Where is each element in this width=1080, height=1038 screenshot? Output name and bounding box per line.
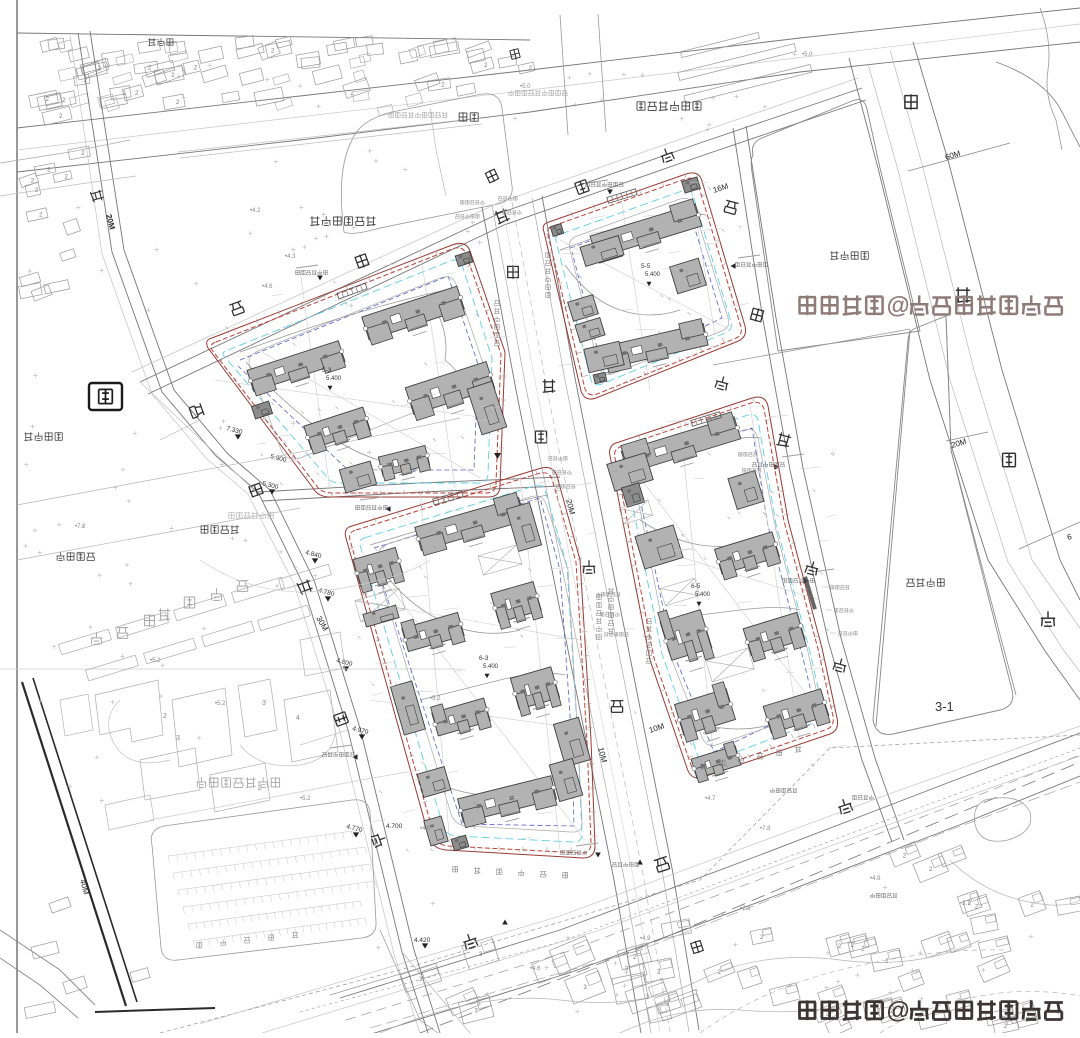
svg-text:•4.2: •4.2 <box>250 208 261 214</box>
svg-text:4.700: 4.700 <box>386 823 403 830</box>
svg-text:3-1: 3-1 <box>935 699 954 714</box>
svg-text:6-3: 6-3 <box>479 655 489 662</box>
svg-text:5.400: 5.400 <box>645 272 661 278</box>
svg-text:5.400: 5.400 <box>695 592 711 598</box>
svg-text:•7.2: •7.2 <box>75 524 86 530</box>
svg-text:•3.7: •3.7 <box>960 901 971 907</box>
svg-text:•4.9: •4.9 <box>640 936 651 942</box>
svg-text:•4.6: •4.6 <box>530 966 541 972</box>
svg-text:5-3: 5-3 <box>322 367 332 374</box>
svg-text:5.400: 5.400 <box>326 376 342 382</box>
svg-text:•7.8: •7.8 <box>740 906 751 912</box>
svg-text:4: 4 <box>296 715 300 722</box>
svg-text:•5.0: •5.0 <box>802 52 813 58</box>
svg-text:2: 2 <box>163 713 167 720</box>
svg-text:3: 3 <box>262 700 266 707</box>
svg-text:3: 3 <box>176 735 180 742</box>
svg-text:•5.2: •5.2 <box>430 696 441 702</box>
svg-text:6-5: 6-5 <box>691 583 701 590</box>
svg-text:•4.7: •4.7 <box>705 796 716 802</box>
svg-text:@: @ <box>887 997 910 1023</box>
svg-text:•4.6: •4.6 <box>420 826 431 832</box>
svg-text:•5.0: •5.0 <box>520 84 531 90</box>
svg-text:•5.2: •5.2 <box>215 701 226 707</box>
svg-text:•5.2: •5.2 <box>150 658 161 664</box>
svg-text:•7.8: •7.8 <box>760 826 771 832</box>
svg-text:4.420: 4.420 <box>414 937 431 944</box>
svg-text:•5.2: •5.2 <box>300 796 311 802</box>
svg-text:5.400: 5.400 <box>483 664 499 670</box>
svg-text:•4.3: •4.3 <box>285 254 296 260</box>
svg-text:@: @ <box>887 292 910 318</box>
svg-text:5-5: 5-5 <box>641 263 651 270</box>
svg-text:•4.9: •4.9 <box>870 876 881 882</box>
svg-text:•4.6: •4.6 <box>262 284 273 290</box>
